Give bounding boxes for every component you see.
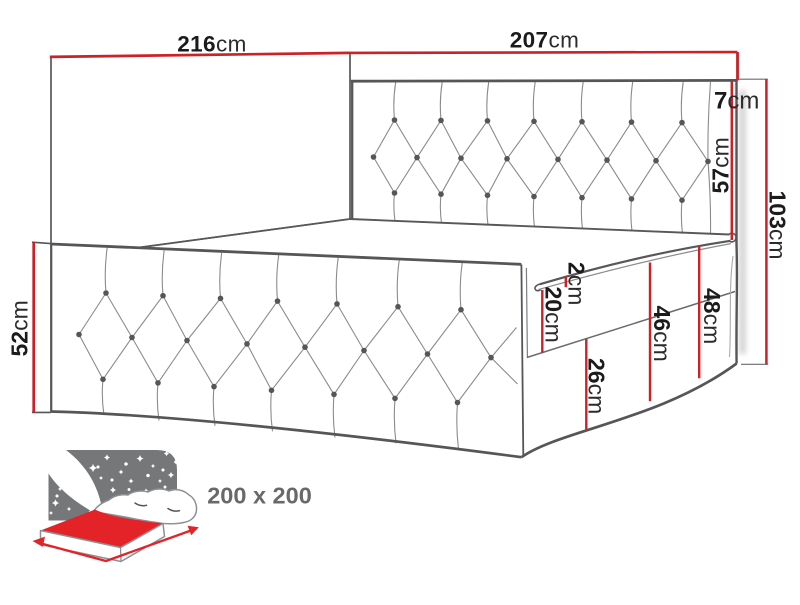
svg-text:207cm: 207cm bbox=[510, 28, 580, 53]
svg-text:52cm: 52cm bbox=[7, 300, 33, 356]
svg-text:26cm: 26cm bbox=[584, 358, 610, 414]
svg-text:46cm: 46cm bbox=[649, 306, 675, 362]
svg-text:7cm: 7cm bbox=[714, 88, 759, 115]
svg-text:48cm: 48cm bbox=[699, 288, 725, 344]
svg-text:20cm: 20cm bbox=[541, 287, 567, 343]
svg-text:200 x 200: 200 x 200 bbox=[207, 483, 312, 509]
svg-text:57cm: 57cm bbox=[708, 137, 734, 193]
svg-text:103cm: 103cm bbox=[765, 191, 791, 260]
svg-text:216cm: 216cm bbox=[177, 32, 247, 57]
